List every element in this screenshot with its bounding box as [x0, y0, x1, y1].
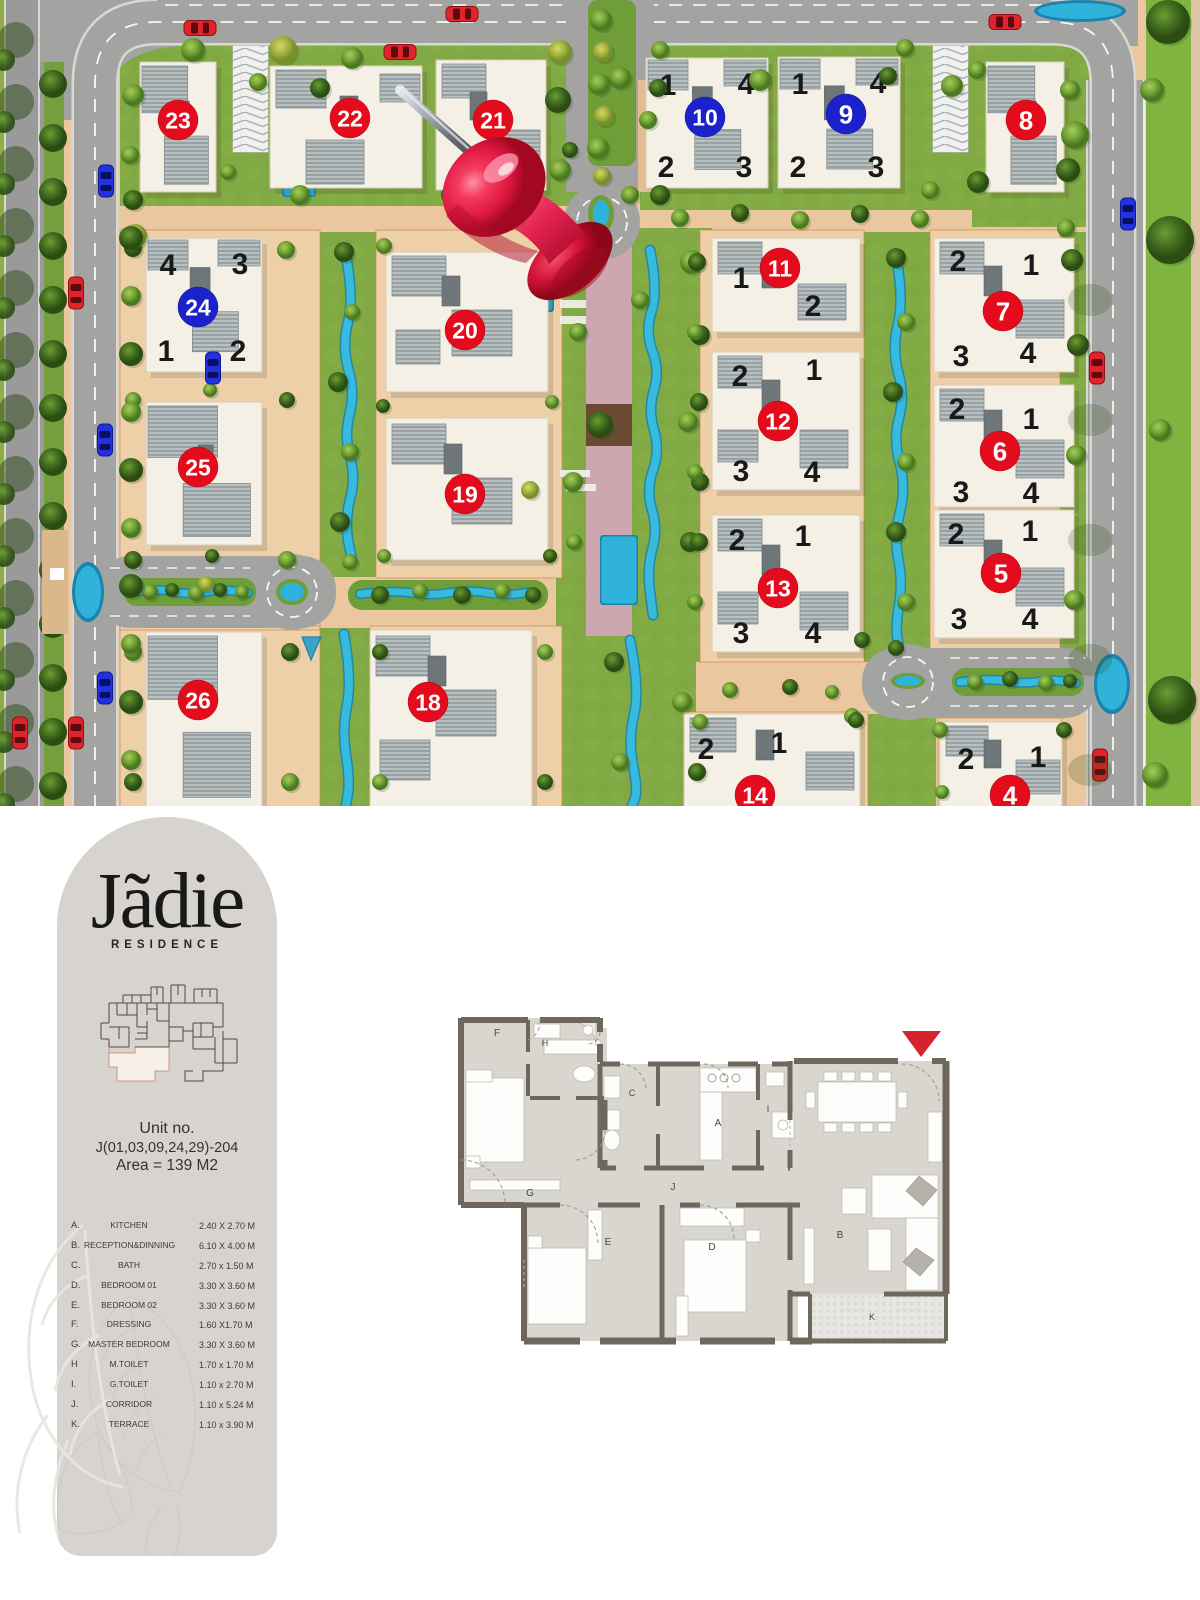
svg-text:4: 4: [804, 456, 821, 489]
svg-text:2: 2: [729, 524, 746, 557]
svg-text:B: B: [837, 1230, 844, 1241]
svg-text:1: 1: [733, 262, 750, 295]
svg-text:3: 3: [733, 455, 750, 488]
svg-text:1: 1: [1023, 249, 1040, 282]
svg-text:11: 11: [768, 255, 793, 281]
svg-text:K: K: [869, 1312, 875, 1322]
svg-text:5: 5: [994, 558, 1008, 588]
svg-text:3: 3: [733, 617, 750, 650]
svg-text:3: 3: [736, 151, 753, 184]
svg-text:J: J: [671, 1182, 676, 1193]
svg-text:4: 4: [1003, 780, 1018, 806]
svg-text:8: 8: [1019, 105, 1033, 135]
svg-text:D: D: [708, 1242, 715, 1253]
svg-text:14: 14: [742, 782, 768, 806]
svg-text:4: 4: [805, 617, 822, 650]
svg-text:12: 12: [765, 408, 791, 434]
svg-text:1: 1: [792, 68, 809, 101]
svg-text:2: 2: [950, 245, 967, 278]
svg-text:2: 2: [230, 335, 247, 368]
svg-text:3: 3: [951, 603, 968, 636]
svg-text:3: 3: [953, 340, 970, 373]
svg-text:A: A: [715, 1118, 722, 1129]
svg-text:20: 20: [452, 317, 478, 343]
svg-text:C: C: [629, 1088, 636, 1098]
svg-text:21: 21: [480, 107, 506, 133]
svg-text:2: 2: [948, 518, 965, 551]
svg-text:2: 2: [658, 151, 675, 184]
svg-text:6: 6: [993, 436, 1007, 466]
svg-text:4: 4: [160, 249, 177, 282]
svg-text:4: 4: [1022, 603, 1039, 636]
svg-text:1: 1: [1023, 403, 1040, 436]
svg-text:23: 23: [165, 107, 191, 133]
svg-text:22: 22: [337, 105, 363, 131]
svg-text:H: H: [542, 1038, 549, 1048]
svg-text:2: 2: [698, 733, 715, 766]
svg-text:I: I: [767, 1104, 770, 1114]
svg-text:1: 1: [771, 727, 788, 760]
svg-text:1: 1: [158, 335, 175, 368]
svg-text:1: 1: [1022, 515, 1039, 548]
svg-text:4: 4: [1023, 477, 1040, 510]
svg-text:18: 18: [415, 689, 441, 715]
svg-text:9: 9: [839, 99, 853, 129]
svg-text:2: 2: [805, 290, 822, 323]
svg-text:25: 25: [185, 454, 211, 480]
svg-text:2: 2: [790, 151, 807, 184]
svg-text:1: 1: [806, 354, 823, 387]
svg-text:3: 3: [953, 476, 970, 509]
svg-text:3: 3: [232, 248, 249, 281]
svg-text:7: 7: [996, 296, 1010, 326]
svg-text:4: 4: [1020, 337, 1037, 370]
svg-text:2: 2: [732, 360, 749, 393]
svg-text:E: E: [605, 1237, 612, 1248]
svg-text:2: 2: [958, 743, 975, 776]
svg-text:19: 19: [452, 481, 478, 507]
svg-text:F: F: [494, 1028, 500, 1039]
svg-text:2: 2: [949, 393, 966, 426]
svg-text:24: 24: [185, 294, 211, 320]
svg-text:10: 10: [692, 104, 718, 130]
svg-text:1: 1: [795, 520, 812, 553]
svg-text:1: 1: [1030, 741, 1047, 774]
svg-text:3: 3: [868, 151, 885, 184]
svg-text:13: 13: [765, 575, 791, 601]
svg-text:26: 26: [185, 687, 211, 713]
svg-text:G: G: [526, 1188, 534, 1199]
